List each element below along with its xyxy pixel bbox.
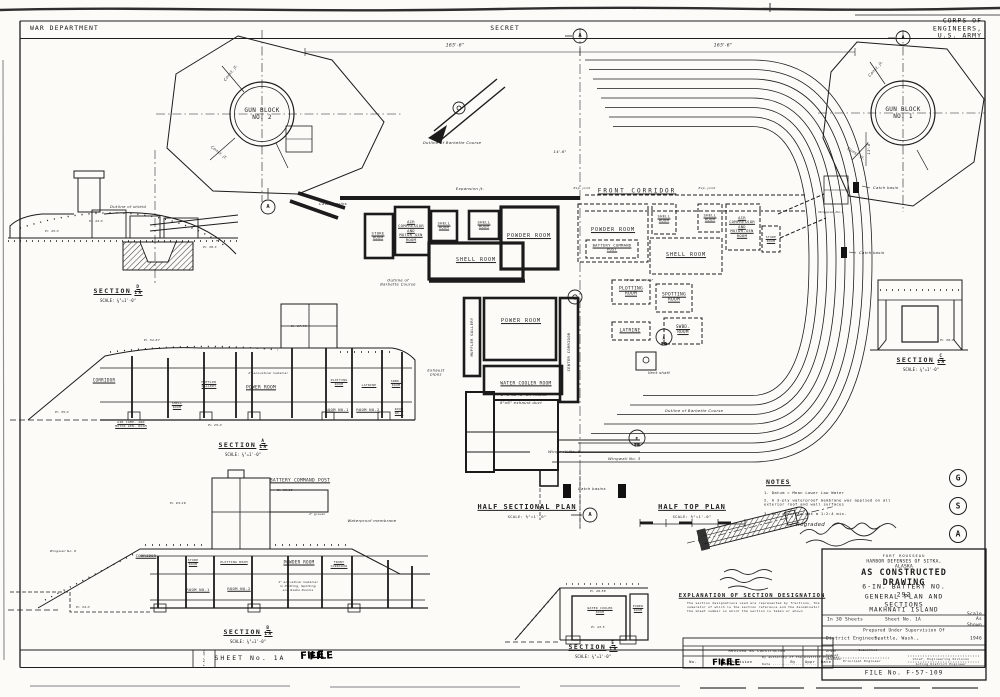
half-top-plan-scale: SCALE: ⅛"=1'-0"	[673, 515, 712, 519]
title-block-makhnati-island: MAKHNATI ISLAND	[869, 606, 938, 613]
title-block-fort-rousseau: FORT ROUSSEAU	[883, 554, 926, 558]
exp-joint-note: Exp. joint	[698, 186, 715, 190]
gun-block-2	[156, 30, 402, 218]
plan-misc	[568, 290, 672, 446]
title-block-acting-district-engineer: Acting District Engineer	[916, 662, 967, 666]
title-block-prepared-under: Prepared Under Supervision Of	[863, 629, 945, 634]
catch-basin-label: Catch basin	[873, 186, 899, 190]
waterproof-membrane-note: Waterproof membrane	[348, 519, 397, 523]
air-intake-note: 2'-0"x2'-6" air intake	[501, 393, 547, 397]
marker-g: G	[956, 474, 961, 483]
file-stamp-text-overlap: FILE	[720, 658, 741, 669]
shell-room-big-left-label: SHELL ROOM	[456, 258, 496, 264]
section-a-title: SECTIONA1A SCALE: ⅛"=1'-0"	[218, 440, 267, 457]
title-block-submitted: Submitted	[859, 648, 878, 652]
elevation-label: El. 63.29	[170, 501, 186, 505]
elevation-label: El. 38.0	[940, 338, 954, 342]
scan-edge-marks	[0, 3, 1000, 688]
elevation-label: El. 43.0	[89, 219, 103, 223]
header-secret-classification: SECRET	[490, 25, 519, 33]
title-block-scale-as-shown: Scale As Shown	[964, 612, 982, 628]
section-scale: SCALE: ⅛"=1'-0"	[568, 654, 617, 659]
section-e-title: SECTIONE1A SCALE: ⅛"=1'-0"	[568, 642, 617, 659]
section-b-title: SECTIONB1A SCALE: ⅛"=1'-0"	[223, 627, 272, 644]
center-corridor-label: CENTER CORRIDOR	[567, 333, 571, 372]
pointer-arrow	[428, 79, 505, 144]
section-a-room1-label: ROOM NO.1	[325, 408, 348, 412]
marker-s: S	[956, 502, 961, 511]
outline-barbette-note: Outline of Barbette Course	[423, 141, 482, 145]
elevation-label: El. 69.89	[277, 488, 293, 492]
exhaust-duct-note: 6"x6" exhaust duct	[500, 401, 542, 405]
powder-room-left-label: POWDER ROOM	[507, 234, 551, 240]
axis-marker-a-bottom: A	[588, 512, 591, 518]
half-sectional-plan-title: HALF SECTIONAL PLAN	[477, 503, 576, 511]
shell-room-label: SHELL ROOM	[658, 215, 671, 224]
engineering-drawing-sheet: { "header": { "left": "WAR DEPARTMENT", …	[0, 0, 1000, 697]
marker-den: 1A	[634, 444, 640, 450]
title-block-in-30-sheets: In 30 Sheets	[827, 617, 863, 622]
wingwall-6-note: Wingwall No. 6	[50, 549, 77, 553]
expansion-joint-note: Expansion jt.	[456, 187, 484, 191]
catch-basins-note: Catch basins	[319, 202, 347, 206]
drawing-linework	[0, 0, 1000, 697]
section-e-water-cooler-label: WATER COOLER ROOM	[587, 606, 612, 614]
elevation-label: El. 35.0	[55, 410, 69, 414]
shell-room-label: SHELL ROOM	[704, 214, 717, 223]
bottom-vertical-file-no: F-57-109	[202, 650, 206, 667]
half-sectional-plan-scale: SCALE: ⅛"=1'-0"	[508, 515, 547, 519]
section-d-linework	[8, 150, 238, 285]
section-word: SECTION	[93, 287, 131, 295]
marker-a-circle: A	[956, 530, 961, 539]
section-b-plotting-label: PLOTTING ROOM	[220, 560, 247, 564]
dimension-165-left: 165'-6"	[446, 43, 464, 48]
file-stamp-text-overlap: FILE	[309, 650, 333, 662]
section-b-corridor-label: CORRIDOR	[136, 554, 157, 558]
battery-command-post-label: BATTERY COMMAND POST	[593, 244, 632, 253]
muffler-gallery-label: MUFFLER GALLERY	[470, 318, 474, 357]
shell-room-label: SHELL ROOM	[438, 222, 451, 231]
section-cut-marker-e: E1A	[634, 427, 640, 450]
section-a-shell-room-label: SHELL ROOM	[172, 401, 183, 409]
bottom-sheet-no: SHEET No. 1A	[215, 655, 286, 663]
section-a-muffler-label: MUFFLER GALLERY	[202, 380, 217, 388]
section-word: SECTION	[223, 628, 261, 636]
plan-right-dashed	[578, 195, 805, 344]
catch-basins-note: Catch basins	[578, 487, 606, 491]
exp-joint-note: Exp. joint	[573, 186, 590, 190]
elevation-label: El. 43.5	[591, 625, 605, 629]
header-war-department: WAR DEPARTMENT	[30, 25, 99, 33]
title-block-sheet-no: Sheet No. 1A	[885, 617, 921, 622]
catch-basin-label: Catch basin	[859, 251, 885, 255]
section-scale: SCALE: ⅛"=1'-0"	[218, 452, 267, 457]
section-den: 1A	[937, 360, 945, 366]
dimension-13-6: 13'-6"	[867, 141, 871, 154]
explanation-body: The section designations used are repres…	[687, 601, 823, 613]
elevation-label: El. 25.0	[208, 423, 222, 427]
section-e-power-label: POWER ROOM	[633, 604, 644, 612]
shell-room-label: SHELL ROOM	[478, 221, 491, 230]
air-compressor-left-label: AIR COMPRESSOR AND MOTOR GEN ROOM	[398, 220, 424, 242]
title-block-principal-engineer: Principal Engineer	[843, 659, 881, 663]
section-b-room1-label: ROOM NO.1	[186, 588, 209, 592]
axis-marker-a-top: A	[578, 33, 581, 39]
section-a-acoustical-note: 2" acoustical material	[248, 371, 287, 375]
section-scale: SCALE: ⅛"=1'-0"	[896, 367, 945, 372]
half-top-plan-title: HALF TOP PLAN	[658, 503, 726, 511]
elevation-label: El. 45.0	[45, 229, 59, 233]
elevation-label: El. 49.58	[590, 589, 606, 593]
title-block-district-engineer: District Engineer,	[826, 636, 880, 641]
powder-room-right-label: POWDER ROOM	[591, 228, 635, 234]
notes-item-3: 3. All concrete was a 1:2:4 mix.	[764, 512, 847, 516]
bottom-authority-note: By authority of the District Engineer	[762, 655, 840, 659]
section-a-latrine-label: LATRINE	[362, 383, 377, 387]
section-word: SECTION	[896, 356, 934, 364]
outline-barbette-note: Outline of Barbette Course	[665, 409, 724, 413]
wingwall-1-label: Wingwall No.1	[818, 210, 843, 214]
notes-item-2: 2. A 3-ply waterproof membrane was appli…	[764, 499, 914, 508]
section-b-front-corridor-label: FRONT CORRIDOR	[331, 560, 348, 568]
section-scale: SCALE: ⅛"=1'-0"	[223, 639, 272, 644]
section-b-bc-post-label: BATTERY COMMAND POST	[270, 478, 330, 483]
revision-revised-as-constructed: Revised as constructed	[729, 649, 786, 653]
regraded-handwriting: Regraded	[796, 522, 825, 528]
section-a-air-comp-label: AIR COMP. AND MOTOR GEN. ROOM	[115, 420, 147, 428]
title-block-chief-engineering: Chief, Engineering Division	[913, 657, 970, 661]
latrine-label: LATRINE	[619, 328, 640, 333]
section-scale: SCALE: ⅛"=1'-0"	[93, 298, 142, 303]
section-d-title: SECTIOND1A SCALE: ⅛"=1'-0"	[93, 286, 142, 303]
section-den: 1A	[264, 632, 272, 638]
section-a-room3-label: ROOM NO.3	[395, 407, 403, 415]
outline-of-shield-note: Outline of shield	[110, 205, 146, 209]
section-b-acoustical-note: 1" acoustical material in Plotting, Spot…	[278, 580, 317, 592]
revision-col-no: No.	[689, 660, 697, 664]
section-a-plotting-label: PLOTTING ROOM	[331, 378, 348, 386]
section-word: SECTION	[218, 441, 256, 449]
section-cut-marker-a: A1A	[661, 326, 667, 349]
water-cooler-room-label: WATER COOLER ROOM	[500, 381, 551, 386]
section-b-store-label: STORE ROOM	[188, 558, 199, 566]
store-room-right-label: STORE ROOM	[766, 235, 777, 243]
section-word: SECTION	[568, 643, 606, 651]
embankment-contour-curves	[552, 60, 872, 462]
title-block-file-no: FILE No. F-57-109	[865, 669, 943, 676]
section-den: 1A	[134, 291, 142, 297]
store-room-left-label: STORE ROOM	[372, 232, 385, 241]
wingwall-5-note: Wingwall No. 5	[548, 450, 581, 454]
section-e-linework	[505, 584, 648, 644]
elevation-label: El. 34.0	[76, 605, 90, 609]
section-b-room2-label: ROOM NO.2	[227, 587, 250, 591]
exp-joint-roof-note: Exp. jt. in roof	[627, 278, 653, 282]
section-b-powder-label: POWDER ROOM	[283, 561, 314, 566]
sheet-frame	[20, 21, 985, 668]
swbd-room-label: SWBD. ROOM	[676, 325, 690, 335]
header-corps-of-engineers: CORPS OF ENGINEERS, U.S. ARMY	[933, 18, 982, 41]
section-b-linework	[8, 470, 430, 612]
gravel-note: 4" gravel	[309, 512, 325, 516]
axis-marker-a-left: A	[266, 204, 269, 210]
marker-den: 1A	[661, 343, 667, 349]
notes-title: NOTES	[766, 479, 791, 487]
notes-item-1: 1. Datum = Mean Lower Low Water	[764, 491, 844, 495]
elevation-label: El. 39.3	[203, 245, 217, 249]
front-corridor-label: FRONT CORRIDOR	[598, 187, 677, 194]
section-c-title: SECTIONC1A SCALE: ⅛"=1'-0"	[896, 355, 945, 372]
section-den: 1A	[259, 445, 267, 451]
section-a-linework	[10, 304, 415, 420]
elevation-label: El. 67.79	[291, 324, 307, 328]
spotting-room-label: SPOTTING ROOM	[662, 293, 686, 304]
section-a-swbd-label: SWBD. ROOM	[391, 379, 402, 387]
outline-barbette-note: Outline of Barbette Course	[380, 279, 416, 288]
section-a-corridor-label: CORRIDOR	[93, 379, 116, 384]
air-compressor-right-label: AIR COMPRESSOR AND MOTOR-GEN ROOM	[729, 216, 755, 238]
section-a-room2-label: ROOM NO.2	[356, 408, 379, 412]
dimension-14-6: 14'-6"	[553, 150, 566, 154]
section-a-power-room-label: POWER ROOM	[246, 385, 276, 390]
plotting-room-label: PLOTTING ROOM	[619, 287, 643, 298]
gun-block-2-label: GUN BLOCK NO. 2	[244, 107, 279, 121]
elevation-label: El. 52.67	[144, 338, 160, 342]
dimension-165-right: 165'-6"	[714, 43, 732, 48]
gun-block-1-label: GUN BLOCK NO. 1	[885, 106, 920, 120]
exhaust-pipes-note: Exhaust pipes	[427, 369, 444, 378]
title-block-year: 1946	[970, 636, 982, 641]
axis-marker-a-top-right: A	[901, 35, 904, 41]
title-block-seattle: Seattle, Wash.,	[874, 636, 919, 641]
bottom-date-line: Date .....................	[762, 662, 817, 666]
shell-room-big-right-label: SHELL ROOM	[666, 253, 706, 259]
wingwall-3-note: Wingwall No. 3	[608, 457, 641, 461]
power-room-label: POWER ROOM	[501, 319, 541, 325]
section-den: 1A	[609, 647, 617, 653]
explanation-title: EXPLANATION OF SECTION DESIGNATION	[679, 593, 826, 599]
vent-shaft-note: Vent shaft	[648, 371, 670, 375]
